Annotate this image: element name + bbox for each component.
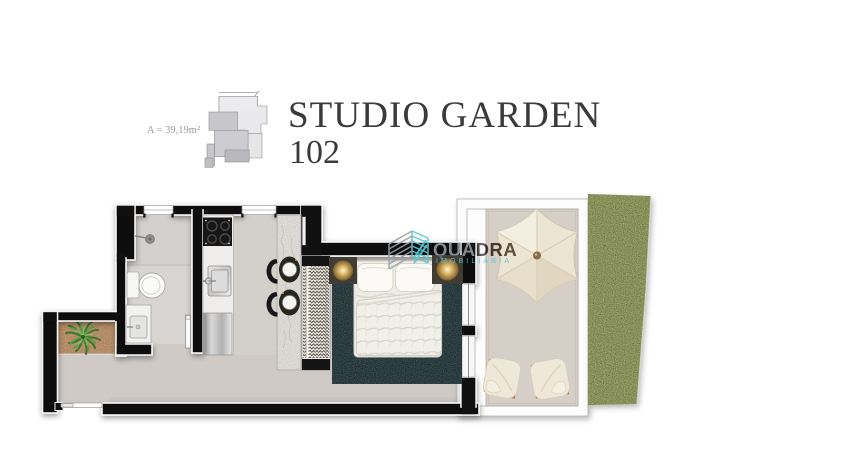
svg-text:IMOBILIÁRIA: IMOBILIÁRIA [436,256,512,265]
svg-text:102: 102 [289,134,340,171]
svg-text:QUADRA: QUADRA [433,239,517,260]
svg-text:STUDIO GARDEN: STUDIO GARDEN [288,95,601,136]
svg-text:A = 39,19m²: A = 39,19m² [147,125,200,136]
